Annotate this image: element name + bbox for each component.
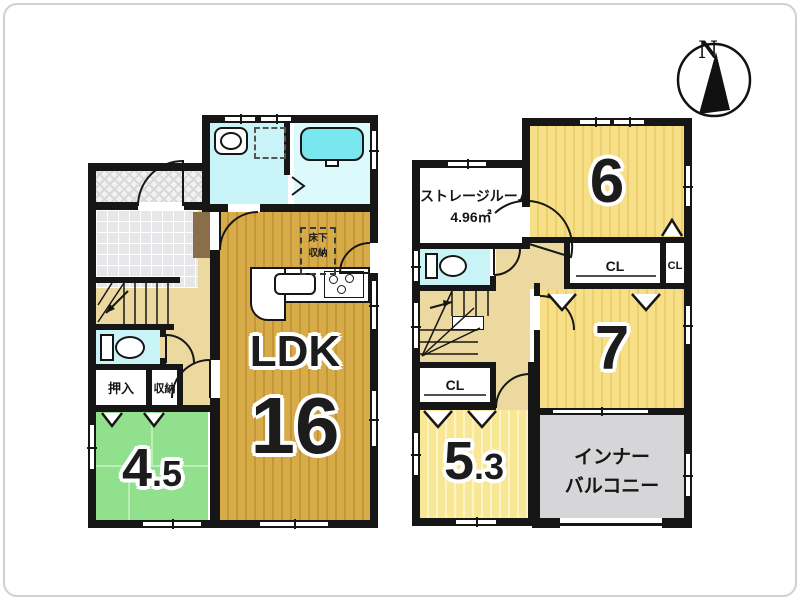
window — [412, 251, 420, 281]
wall — [662, 518, 692, 528]
compass: N — [668, 30, 760, 126]
room7-size-label: 7 — [540, 313, 684, 384]
door-opening — [522, 207, 530, 237]
window — [370, 281, 378, 329]
wall — [534, 283, 540, 296]
inner-balcony-line2: バルコニー — [540, 473, 684, 502]
window — [88, 425, 96, 469]
wall — [684, 344, 692, 454]
wall — [528, 410, 540, 518]
wall — [201, 520, 260, 528]
window — [261, 115, 291, 123]
cl-right-label: CL — [664, 249, 686, 283]
window — [260, 520, 328, 528]
ldk-size-label: 16 — [220, 380, 370, 472]
floor-plan-1f: 床下 収納 押入 収納 LDK 16 4.5 — [88, 115, 388, 540]
door-opening — [138, 202, 184, 210]
wall — [88, 202, 138, 210]
stove-burner — [337, 285, 346, 294]
window — [370, 131, 378, 169]
bathtub — [300, 127, 364, 161]
bathtub-tap — [325, 159, 339, 167]
wall — [88, 163, 96, 528]
north-label: N — [699, 35, 718, 64]
door-opening — [490, 249, 496, 276]
wall — [260, 204, 378, 212]
floor-plan-2f: ストレージルーム 4.96㎡ 6 7 5.3 CL CL CL インナー バルコ… — [408, 118, 700, 540]
tatami-size-fraction: .5 — [152, 453, 182, 494]
wall — [412, 518, 456, 526]
tatami-size-label: 4.5 — [96, 437, 208, 499]
window — [456, 518, 496, 526]
hallway-1f-closet-corridor — [183, 364, 210, 405]
window — [684, 306, 692, 344]
stove-burner — [329, 275, 338, 284]
room53-size-label: 5.3 — [420, 430, 528, 492]
wall — [412, 243, 530, 249]
window — [614, 118, 644, 126]
hallway-2f — [496, 243, 530, 285]
wall — [412, 285, 496, 291]
storage-room-name: ストレージルーム — [420, 186, 522, 207]
wall — [88, 163, 210, 171]
inner-balcony-label: インナー バルコニー — [540, 444, 684, 501]
wall — [528, 362, 536, 410]
underfloor-storage-line2: 収納 — [300, 246, 336, 261]
wall — [532, 518, 560, 528]
shoe-cabinet — [193, 212, 210, 258]
wall — [412, 348, 420, 433]
room6-size-label: 6 — [530, 146, 684, 217]
window — [412, 303, 420, 348]
wall — [486, 160, 530, 168]
toilet-tank — [425, 253, 438, 279]
toilet-tank — [100, 334, 114, 361]
shuno-label: 収納 — [150, 370, 179, 405]
washing-machine-space — [254, 127, 286, 159]
stove-burner — [345, 274, 354, 283]
wall — [564, 283, 684, 289]
oshiire-label: 押入 — [96, 370, 146, 405]
kitchen-sink — [274, 273, 316, 295]
entrance-porch — [96, 171, 202, 202]
wall — [210, 398, 220, 528]
wall — [160, 330, 166, 337]
window — [684, 166, 692, 206]
storage-room-area: 4.96㎡ — [420, 207, 522, 228]
window — [143, 520, 201, 528]
wall — [328, 520, 378, 528]
underfloor-storage-label: 床下 収納 — [300, 231, 336, 261]
wall — [184, 202, 210, 210]
window — [553, 408, 648, 415]
wall — [412, 402, 496, 410]
room53-size-fraction: .3 — [474, 446, 504, 487]
wall — [522, 118, 580, 126]
wall — [648, 408, 692, 415]
wash-basin-bowl — [220, 132, 242, 150]
window — [684, 454, 692, 496]
inner-balcony-line1: インナー — [540, 444, 684, 473]
stairs-landing — [452, 316, 484, 330]
wall — [88, 405, 210, 412]
toilet-bowl — [439, 255, 467, 277]
wall — [210, 250, 220, 360]
toilet-bowl — [115, 336, 145, 359]
wall — [496, 518, 536, 526]
storage-room-label: ストレージルーム 4.96㎡ — [420, 186, 522, 228]
window — [448, 160, 486, 168]
cl-center-label: CL — [570, 249, 660, 283]
window — [412, 433, 420, 475]
window — [370, 391, 378, 446]
window — [225, 115, 255, 123]
tatami-size-whole: 4 — [122, 438, 152, 498]
door-opening — [370, 243, 378, 273]
wall — [490, 276, 496, 291]
ldk-label: LDK — [220, 327, 370, 377]
floorplan-image: 床下 収納 押入 収納 LDK 16 4.5 — [0, 0, 800, 600]
room53-size-whole: 5 — [444, 431, 474, 491]
balcony-railing — [560, 523, 662, 526]
wall — [530, 237, 692, 243]
wall — [88, 520, 143, 528]
cl-left-label: CL — [420, 368, 490, 402]
window — [580, 118, 610, 126]
underfloor-storage-line1: 床下 — [300, 231, 336, 246]
wall — [412, 160, 420, 251]
wall — [96, 277, 180, 283]
